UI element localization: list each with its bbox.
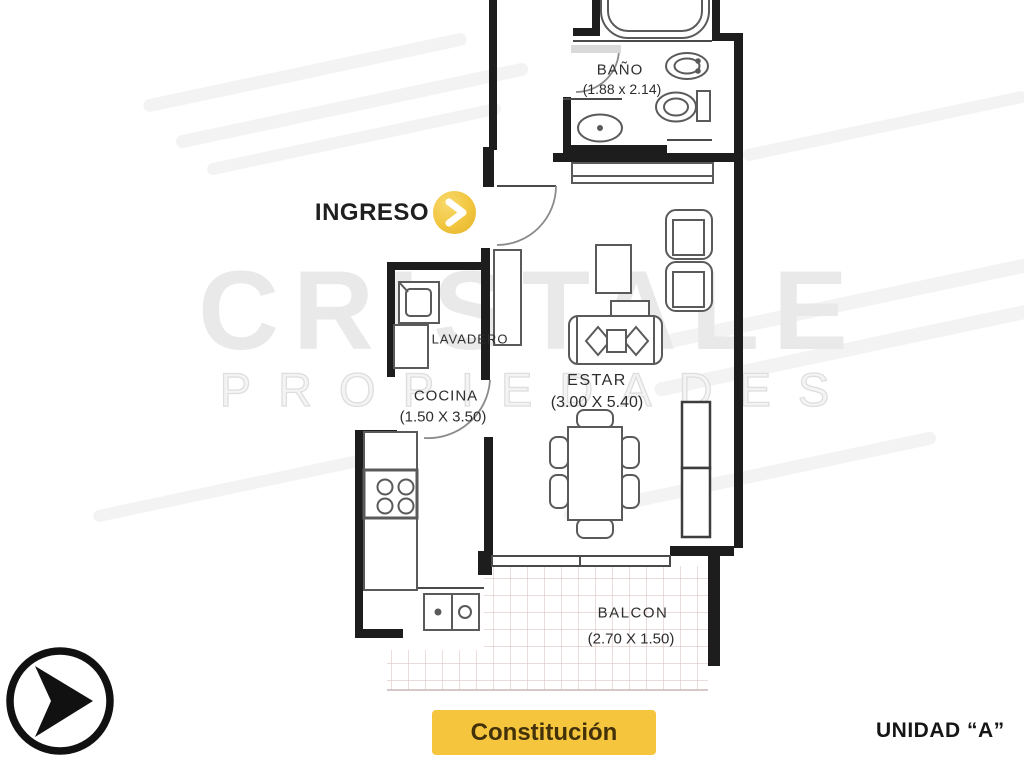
entry-door-arc	[497, 186, 556, 245]
room-dims-cocina: (1.50 X 3.50)	[400, 409, 487, 426]
room-dims-balcon: (2.70 X 1.50)	[588, 631, 675, 648]
room-label-balcon: BALCON	[598, 605, 669, 622]
floor-plan-drawing	[0, 0, 1024, 768]
floor-plan-page: CRISTALE PROPIEDADES	[0, 0, 1024, 768]
washing-machine	[399, 282, 439, 323]
room-dims-estar: (3.00 X 5.40)	[551, 394, 644, 412]
room-label-lavadero: LAVADERO	[432, 332, 509, 347]
window-panes	[682, 402, 710, 537]
room-label-bano: BAÑO	[597, 62, 644, 79]
bathtub	[601, 0, 709, 38]
dining-table	[568, 427, 622, 520]
armchair	[666, 262, 712, 311]
chevron-right-icon	[433, 191, 476, 234]
room-label-estar: ESTAR	[567, 372, 627, 390]
sofa	[569, 316, 662, 364]
toilet	[656, 91, 710, 122]
hall-chair	[596, 245, 631, 293]
entry-label: INGRESO	[315, 199, 429, 227]
laundry-tub	[394, 325, 428, 368]
armchair	[666, 210, 712, 259]
side-table	[611, 301, 649, 317]
sliding-door	[492, 556, 670, 566]
arrow-right-circle-icon	[2, 643, 118, 764]
unit-label: UNIDAD “A”	[876, 719, 1005, 743]
room-dims-bano: (1.88 x 2.14)	[583, 81, 662, 97]
bath-threshold	[571, 45, 621, 53]
location-button[interactable]: Constitución	[432, 710, 656, 755]
stove	[364, 470, 417, 518]
kitchen-sink	[424, 594, 479, 630]
bidet	[666, 53, 708, 79]
wardrobe	[572, 163, 713, 183]
bath-sink	[578, 115, 622, 142]
room-label-cocina: COCINA	[414, 388, 478, 405]
